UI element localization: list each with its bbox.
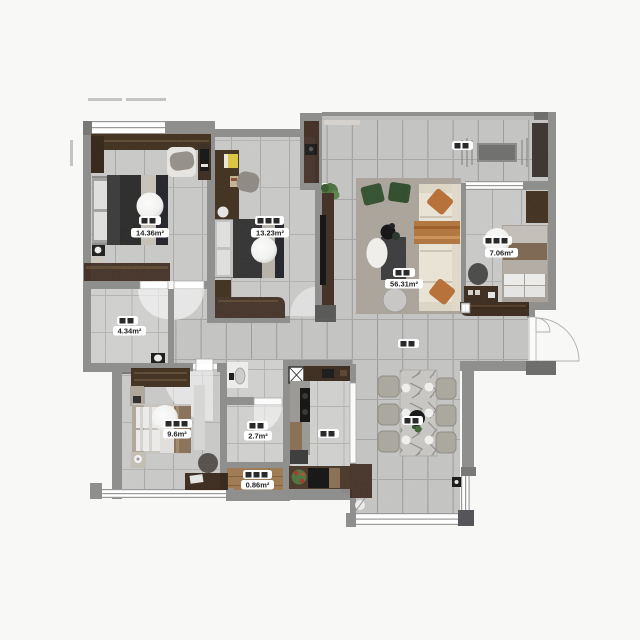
svg-text:0.86m²: 0.86m²: [246, 481, 270, 490]
svg-text:13.23m²: 13.23m²: [256, 229, 284, 238]
svg-text:7.06m²: 7.06m²: [490, 249, 514, 258]
svg-text:4.34m²: 4.34m²: [118, 327, 142, 336]
svg-text:14.36m²: 14.36m²: [136, 229, 164, 238]
svg-text:9.6m²: 9.6m²: [167, 430, 187, 439]
svg-text:56.31m²: 56.31m²: [390, 280, 418, 289]
svg-text:2.7m²: 2.7m²: [248, 432, 268, 441]
